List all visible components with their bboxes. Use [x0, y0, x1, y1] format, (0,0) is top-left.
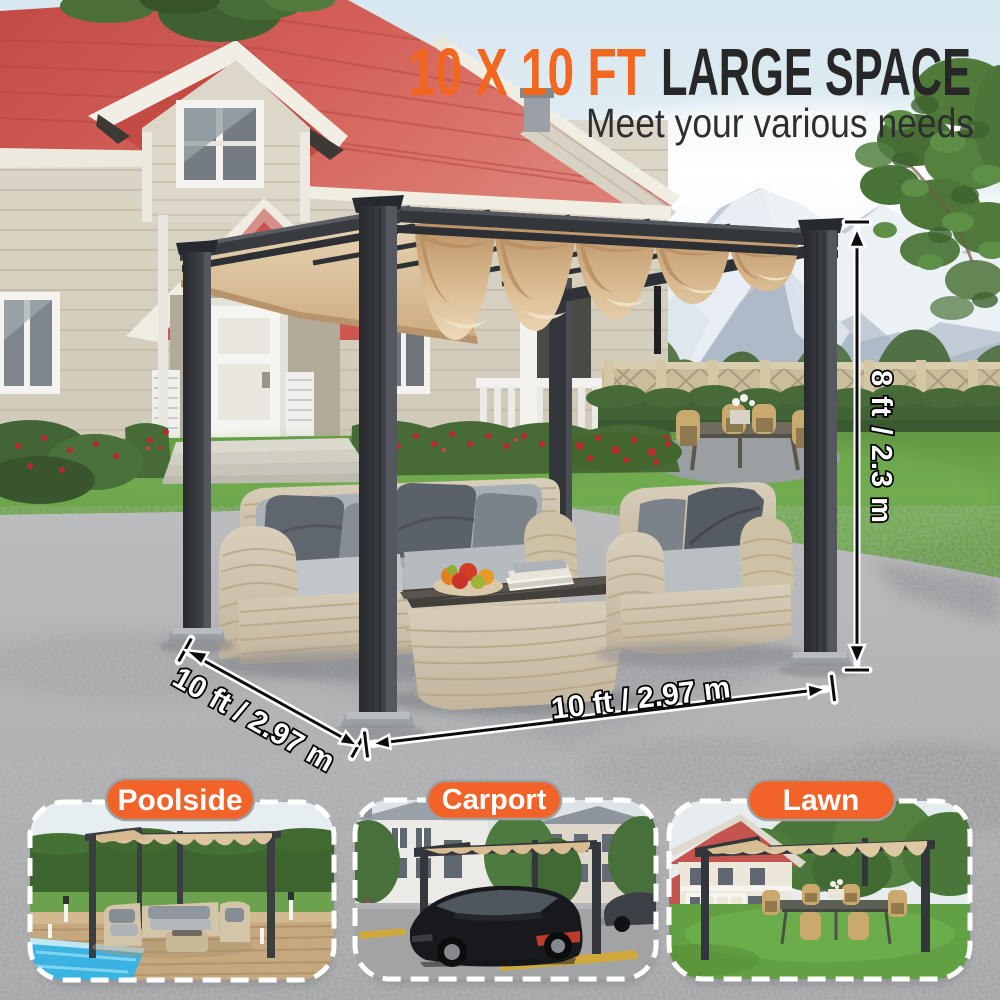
svg-text:Carport: Carport: [442, 784, 547, 816]
svg-text:Poolside: Poolside: [117, 784, 242, 817]
svg-text:Meet your various needs: Meet your various needs: [586, 100, 974, 146]
svg-text:8 ft / 2.3 m: 8 ft / 2.3 m: [865, 370, 897, 524]
svg-text:Lawn: Lawn: [783, 784, 860, 817]
svg-text:10 X 10 FT: 10 X 10 FT: [409, 35, 646, 110]
svg-text:LARGE SPACE: LARGE SPACE: [661, 35, 971, 110]
